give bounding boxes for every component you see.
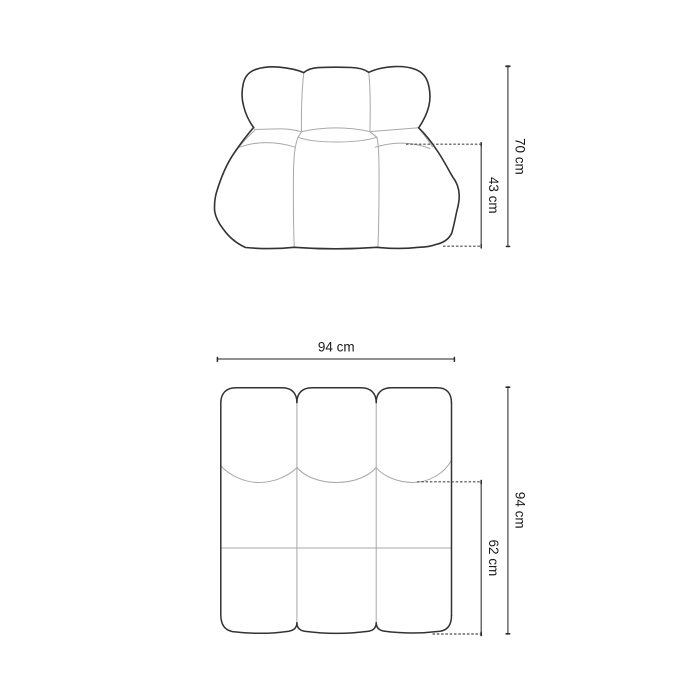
svg-text:94 cm: 94 cm	[318, 340, 355, 355]
svg-text:70 cm: 70 cm	[513, 138, 528, 175]
svg-text:94 cm: 94 cm	[513, 492, 528, 529]
svg-text:62 cm: 62 cm	[486, 540, 501, 577]
svg-text:43 cm: 43 cm	[486, 177, 501, 214]
